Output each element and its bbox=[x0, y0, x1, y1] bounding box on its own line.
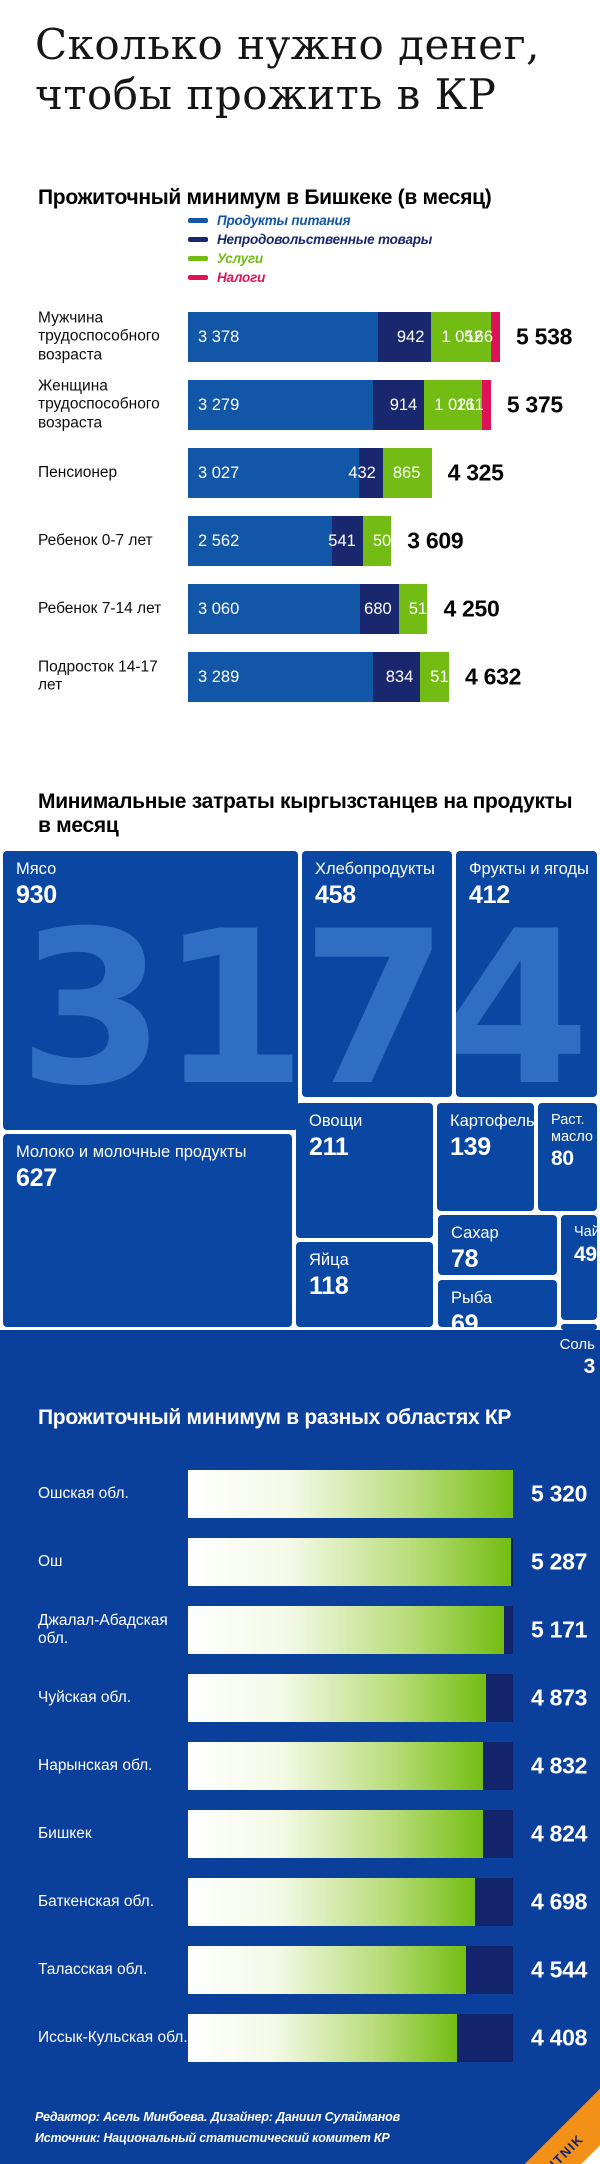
region-category-label: Ошская обл. bbox=[38, 1485, 188, 1503]
bar-segment: 914 bbox=[373, 380, 424, 430]
legend-swatch bbox=[188, 237, 208, 242]
region-bar-row: Джалал-Абадская обл.5 171 bbox=[0, 1606, 600, 1654]
bar-segment: 432 bbox=[359, 448, 383, 498]
region-bar-row: Нарынская обл.4 832 bbox=[0, 1742, 600, 1790]
treemap-box: Чай49 bbox=[561, 1215, 597, 1320]
bar-total-value: 5 375 bbox=[507, 392, 563, 419]
region-bar-value: 4 873 bbox=[531, 1685, 587, 1712]
treemap-box-label: Фрукты и ягоды bbox=[469, 860, 597, 879]
stacked-bar-row: Ребенок 7-14 лет3 0606805104 250 bbox=[0, 584, 600, 634]
treemap-box-value: 211 bbox=[309, 1133, 433, 1162]
legend-item: Непродовольственные товары bbox=[188, 230, 432, 249]
region-bar bbox=[188, 1470, 513, 1518]
bar-total-value: 4 325 bbox=[448, 460, 504, 487]
region-bar bbox=[188, 1606, 504, 1654]
region-bar-row: Бишкек4 824 bbox=[0, 1810, 600, 1858]
treemap-box-value: 139 bbox=[450, 1133, 534, 1162]
region-bar-row: Ошская обл.5 320 bbox=[0, 1470, 600, 1518]
treemap-box: Рыба69 bbox=[438, 1280, 557, 1327]
bar-total-value: 4 250 bbox=[443, 596, 499, 623]
region-bar bbox=[188, 1946, 466, 1994]
region-bar-value: 4 832 bbox=[531, 1753, 587, 1780]
treemap-box-label: Мясо bbox=[16, 860, 298, 879]
bar-total-value: 4 632 bbox=[465, 664, 521, 691]
legend-item: Продукты питания bbox=[188, 211, 432, 230]
treemap-box: Сахар78 bbox=[438, 1215, 557, 1275]
stacked-bar-row: Пенсионер3 0274328654 325 bbox=[0, 448, 600, 498]
region-category-label: Джалал-Абадская обл. bbox=[38, 1612, 188, 1648]
bar-segment: 942 bbox=[378, 312, 431, 362]
treemap-box-value: 412 bbox=[469, 881, 597, 910]
bar-total-value: 3 609 bbox=[407, 528, 463, 555]
legend-label: Услуги bbox=[217, 251, 263, 266]
bar-segment: 505 bbox=[363, 516, 391, 566]
treemap-box: Фрукты и ягоды412 bbox=[456, 851, 597, 1097]
treemap-box-value: 930 bbox=[16, 881, 298, 910]
treemap-box: Мясо930 bbox=[3, 851, 298, 1130]
region-category-label: Таласская обл. bbox=[38, 1961, 188, 1979]
treemap-box-value: 118 bbox=[309, 1272, 433, 1301]
region-bar-value: 5 320 bbox=[531, 1481, 587, 1508]
treemap-box-label: Овощи bbox=[309, 1112, 433, 1131]
footer-source: Источник: Национальный статистический ко… bbox=[35, 2131, 390, 2145]
legend-swatch bbox=[188, 256, 208, 261]
treemap-box-label: Раст. масло bbox=[551, 1112, 597, 1145]
treemap-box-label: Рыба bbox=[451, 1289, 557, 1308]
treemap-box-value: 627 bbox=[16, 1164, 292, 1193]
treemap-box-label: Чай bbox=[574, 1224, 597, 1241]
treemap-box: Раст. масло80 bbox=[538, 1103, 597, 1211]
section3-title: Прожиточный минимум в разных областях КР bbox=[38, 1406, 578, 1430]
region-bar-row: Таласская обл.4 544 bbox=[0, 1946, 600, 1994]
legend-label: Непродовольственные товары bbox=[217, 232, 432, 247]
region-bar bbox=[188, 1742, 483, 1790]
section1-title: Прожиточный минимум в Бишкеке (в месяц) bbox=[38, 186, 578, 210]
treemap-box-value: 80 bbox=[551, 1147, 597, 1171]
bar-total-value: 5 538 bbox=[516, 324, 572, 351]
treemap-box: Овощи211 bbox=[296, 1103, 433, 1238]
bar-segment: 680 bbox=[360, 584, 398, 634]
region-category-label: Бишкек bbox=[38, 1825, 188, 1843]
section2-title: Минимальные затраты кыргызстанцев на про… bbox=[38, 790, 578, 838]
treemap-item-salt-label: Соль 3 bbox=[505, 1336, 595, 1379]
bar-segment: 865 bbox=[383, 448, 432, 498]
stacked-bar-row: Ребенок 0-7 лет2 5625415053 609 bbox=[0, 516, 600, 566]
stacked-bar-row: Мужчина трудоспособного возраста3 378942… bbox=[0, 312, 600, 362]
bar-category-label: Пенсионер bbox=[38, 464, 180, 482]
infographic-page: Сколько нужно денег, чтобы прожить в КР … bbox=[0, 0, 600, 2164]
bar-segment: 3 279 bbox=[188, 380, 373, 430]
bar-segment: 541 bbox=[332, 516, 362, 566]
bar-segment: 834 bbox=[373, 652, 420, 702]
bar-segment: 3 060 bbox=[188, 584, 360, 634]
stacked-bar-row: Женщина трудоспособного возраста3 279914… bbox=[0, 380, 600, 430]
bar-category-label: Ребенок 7-14 лет bbox=[38, 600, 180, 618]
sputnik-brand-ribbon: SPUTNIK bbox=[483, 2086, 600, 2164]
treemap-chart: Мясо930Хлебопродукты458Фрукты и ягоды412… bbox=[0, 851, 600, 1330]
bar-category-label: Подросток 14-17 лет bbox=[38, 659, 180, 696]
treemap-box-label: Сахар bbox=[451, 1224, 557, 1243]
region-bar-value: 4 698 bbox=[531, 1889, 587, 1916]
sputnik-logo: SPUTNIK bbox=[470, 2034, 600, 2164]
treemap-box-value: 78 bbox=[451, 1245, 557, 1274]
bar-segment: 1 021 bbox=[424, 380, 482, 430]
legend-label: Продукты питания bbox=[217, 213, 350, 228]
bar-category-label: Мужчина трудоспособного возраста bbox=[38, 310, 180, 365]
bar-segment: 161 bbox=[482, 380, 491, 430]
footer-credits: Редактор: Асель Минбоева. Дизайнер: Дани… bbox=[35, 2110, 400, 2124]
legend: Продукты питанияНепродовольственные това… bbox=[188, 211, 432, 287]
region-bar bbox=[188, 2014, 457, 2062]
legend-item: Налоги bbox=[188, 268, 432, 287]
legend-label: Налоги bbox=[217, 270, 265, 285]
region-category-label: Ош bbox=[38, 1553, 188, 1571]
region-bar-value: 5 171 bbox=[531, 1617, 587, 1644]
bar-segment: 3 289 bbox=[188, 652, 373, 702]
region-bar-value: 4 544 bbox=[531, 1957, 587, 1984]
bar-segment: 2 562 bbox=[188, 516, 332, 566]
treemap-box: Молоко и молочные продукты627 bbox=[3, 1134, 292, 1327]
region-bar-row: Баткенская обл.4 698 bbox=[0, 1878, 600, 1926]
bar-segment: 166 bbox=[491, 312, 500, 362]
legend-swatch bbox=[188, 275, 208, 280]
region-category-label: Иссык-Кульская обл. bbox=[38, 2029, 188, 2047]
bar-segment: 3 378 bbox=[188, 312, 378, 362]
treemap-box: Яйца118 bbox=[296, 1242, 433, 1327]
page-title: Сколько нужно денег, чтобы прожить в КР bbox=[35, 20, 575, 121]
region-bar-value: 5 287 bbox=[531, 1549, 587, 1576]
region-bar bbox=[188, 1538, 511, 1586]
bar-segment: 1 052 bbox=[431, 312, 490, 362]
treemap-box: Картофель139 bbox=[437, 1103, 534, 1211]
region-category-label: Чуйская обл. bbox=[38, 1689, 188, 1707]
bar-segment: 3 027 bbox=[188, 448, 359, 498]
treemap-box-label: Хлебопродукты bbox=[315, 860, 452, 879]
region-bar bbox=[188, 1878, 475, 1926]
treemap-box-value: 458 bbox=[315, 881, 452, 910]
treemap-box-value: 49 bbox=[574, 1243, 597, 1267]
bar-category-label: Ребенок 0-7 лет bbox=[38, 532, 180, 550]
treemap-box: Хлебопродукты458 bbox=[302, 851, 452, 1097]
bar-segment: 510 bbox=[399, 584, 428, 634]
stacked-bar-row: Подросток 14-17 лет3 2898345104 632 bbox=[0, 652, 600, 702]
treemap-box-label: Картофель bbox=[450, 1112, 534, 1131]
region-category-label: Нарынская обл. bbox=[38, 1757, 188, 1775]
legend-item: Услуги bbox=[188, 249, 432, 268]
region-bar-row: Ош5 287 bbox=[0, 1538, 600, 1586]
region-category-label: Баткенская обл. bbox=[38, 1893, 188, 1911]
region-bar bbox=[188, 1674, 486, 1722]
bar-segment: 510 bbox=[420, 652, 449, 702]
bar-category-label: Женщина трудоспособного возраста bbox=[38, 378, 180, 433]
treemap-box-label: Молоко и молочные продукты bbox=[16, 1143, 292, 1162]
treemap-box-label: Яйца bbox=[309, 1251, 433, 1270]
region-bar bbox=[188, 1810, 483, 1858]
region-bar-value: 4 824 bbox=[531, 1821, 587, 1848]
legend-swatch bbox=[188, 218, 208, 223]
region-bar-row: Чуйская обл.4 873 bbox=[0, 1674, 600, 1722]
regions-section: Соль 3 Прожиточный минимум в разных обла… bbox=[0, 1330, 600, 2164]
